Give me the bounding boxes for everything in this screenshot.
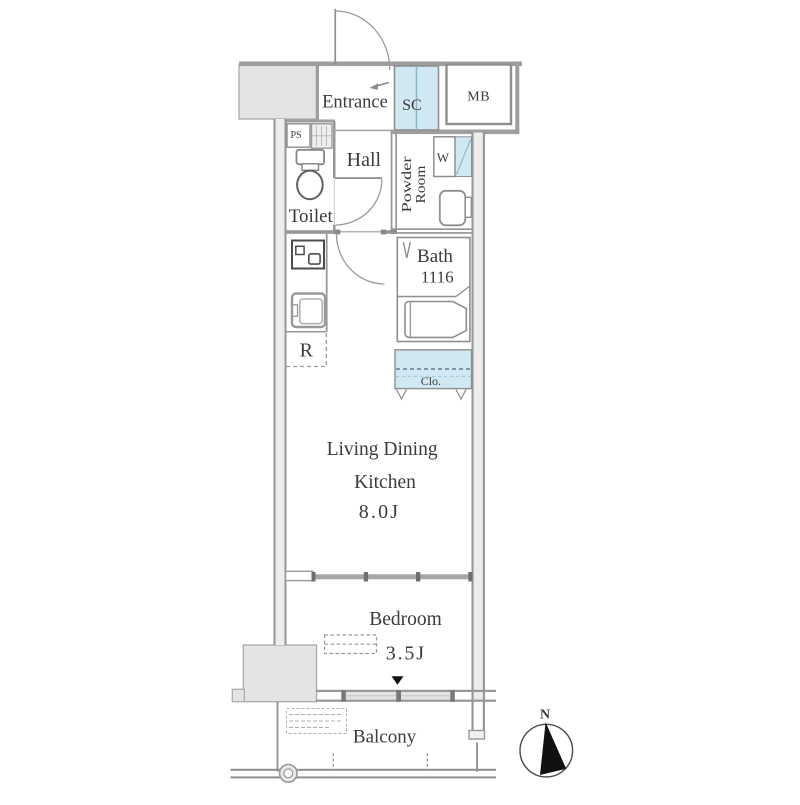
svg-text:N: N [540, 708, 550, 723]
svg-text:Clo.: Clo. [421, 374, 441, 388]
svg-text:Powder: Powder [400, 156, 415, 212]
svg-text:Bath: Bath [417, 246, 453, 267]
svg-text:SC: SC [402, 97, 422, 114]
svg-text:8.0J: 8.0J [359, 501, 401, 523]
svg-text:Kitchen: Kitchen [354, 472, 416, 493]
svg-text:Bedroom: Bedroom [369, 609, 442, 630]
svg-text:Toilet: Toilet [289, 206, 334, 227]
svg-text:MB: MB [467, 90, 490, 105]
svg-text:1116: 1116 [421, 268, 454, 287]
svg-text:Entrance: Entrance [322, 93, 388, 113]
svg-text:PS: PS [291, 130, 302, 141]
svg-text:Room: Room [414, 165, 429, 203]
svg-text:R: R [300, 340, 314, 362]
svg-text:Hall: Hall [347, 149, 382, 171]
svg-text:Balcony: Balcony [353, 727, 417, 748]
svg-text:3.5J: 3.5J [386, 643, 426, 665]
svg-text:Living Dining: Living Dining [327, 439, 438, 460]
svg-text:W: W [437, 150, 450, 165]
